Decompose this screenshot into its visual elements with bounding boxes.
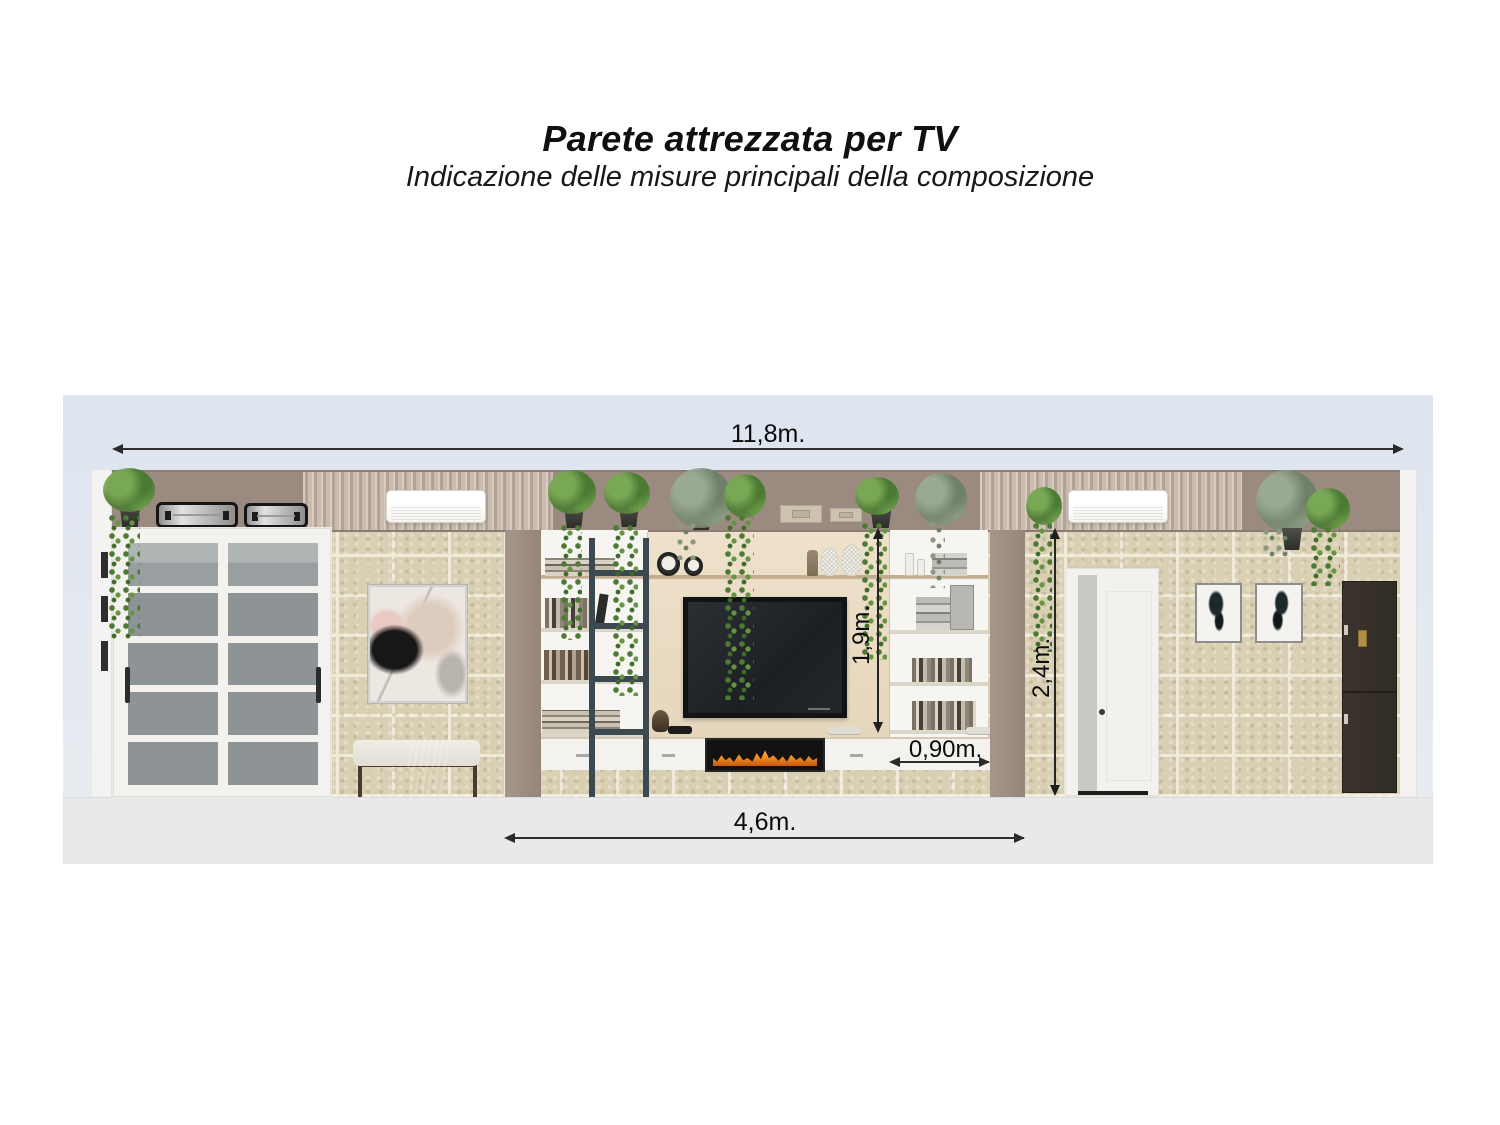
books — [544, 650, 590, 680]
door-track-mark — [101, 596, 108, 622]
bench-leg — [358, 764, 362, 797]
door-threshold — [1078, 791, 1148, 795]
storage-trunk — [156, 502, 238, 528]
door-knob — [1099, 709, 1105, 715]
ladder-rung — [589, 729, 649, 735]
storage-box — [950, 585, 974, 630]
throw-blanket — [406, 738, 450, 795]
bench-leg — [473, 764, 477, 797]
glass-pane — [128, 742, 218, 785]
cabinet-seam — [1343, 691, 1396, 693]
decor-dish — [828, 727, 861, 734]
decor-bottle — [917, 559, 925, 576]
books — [912, 658, 972, 682]
tall-dark-cabinet — [1342, 581, 1397, 793]
hanging-vine — [108, 514, 140, 640]
plant-foliage — [1026, 487, 1062, 525]
abstract-artwork — [368, 585, 467, 703]
framed-artwork — [1195, 583, 1242, 643]
dimension-line-total-width — [115, 448, 1402, 450]
glass-pane — [228, 593, 318, 636]
interior-door — [1065, 568, 1159, 796]
drawer-handle — [576, 754, 589, 757]
fireplace-flames — [713, 746, 817, 766]
artwork-figure — [1263, 590, 1295, 633]
glass-pane — [128, 692, 218, 735]
ladder-rail — [643, 538, 649, 797]
plant-foliage — [103, 468, 155, 512]
trunk-plate — [257, 515, 294, 517]
wall-vent-plate — [780, 505, 822, 523]
door-edge-panel — [1078, 575, 1097, 791]
plant-foliage — [724, 474, 766, 518]
plant-foliage — [1306, 488, 1350, 530]
dimension-label-niche-height: 1,9m. — [848, 600, 876, 670]
dimension-line-right-section — [891, 761, 989, 763]
hanging-vine — [1310, 526, 1340, 586]
plant-foliage — [548, 470, 596, 514]
storage-boxes — [916, 597, 952, 630]
tv-logo — [808, 708, 830, 710]
hanging-vine — [560, 524, 582, 640]
dimension-label-wall-height: 2,4m. — [1028, 633, 1056, 703]
silver-plant-foliage — [915, 473, 967, 525]
wall-right-return — [1400, 470, 1417, 797]
trunk-latch — [165, 511, 171, 520]
arrowhead-up — [873, 528, 883, 539]
arrowhead-left — [112, 444, 123, 454]
hanging-vine — [612, 524, 638, 696]
dimension-label-composition-width: 4,6m. — [665, 808, 865, 837]
arrowhead-right — [979, 757, 990, 767]
cabinet-handle — [1344, 625, 1348, 635]
books — [912, 701, 976, 730]
arrowhead-left — [504, 833, 515, 843]
page-subtitle: Indicazione delle misure principali dell… — [0, 161, 1500, 194]
tv-screen — [683, 597, 847, 718]
trunk-plate — [173, 514, 222, 516]
dimension-line-niche-height — [877, 531, 879, 731]
page-title: Parete attrezzata per TV — [0, 118, 1500, 160]
glass-pane — [228, 742, 318, 785]
glass-pane — [228, 543, 318, 586]
trunk-latch — [223, 511, 229, 520]
decor-vase — [841, 544, 862, 576]
decor-stack — [668, 726, 692, 734]
elevation-drawing-page: Parete attrezzata per TV Indicazione del… — [0, 0, 1500, 1125]
decor-bottle — [807, 550, 818, 576]
glass-pane — [128, 593, 218, 636]
unit-left-column — [505, 530, 541, 797]
silver-trailing-vine — [676, 522, 696, 560]
arrowhead-right — [1014, 833, 1025, 843]
glass-pane — [228, 643, 318, 686]
wall-vent-plate — [830, 508, 862, 522]
glass-pane — [128, 543, 218, 586]
hanging-vine — [724, 514, 754, 700]
cabinet-handle — [1344, 714, 1348, 724]
glass-pane — [228, 692, 318, 735]
door-handle — [125, 667, 130, 703]
silver-trailing-vine — [929, 520, 945, 588]
air-conditioner-left — [386, 490, 486, 523]
arrowhead-down — [1050, 785, 1060, 796]
door-handle — [316, 667, 321, 703]
trunk-latch — [294, 512, 300, 521]
artwork-figure — [1203, 590, 1234, 633]
cabinet-lock — [1358, 630, 1367, 647]
door-panel-line — [1106, 591, 1152, 781]
plant-foliage — [855, 477, 899, 515]
storage-trunk — [244, 503, 308, 528]
decor-bottle — [905, 553, 914, 576]
dimension-line-composition-width — [506, 837, 1024, 839]
air-conditioner-right — [1068, 490, 1168, 523]
decor-pot — [652, 710, 669, 732]
arrowhead-left — [889, 757, 900, 767]
decor-vase — [820, 548, 839, 576]
sliding-glass-door — [113, 528, 331, 797]
electric-fireplace — [705, 738, 825, 772]
ladder-rail — [589, 538, 595, 797]
arrowhead-up — [1050, 528, 1060, 539]
shelf — [890, 682, 988, 685]
silver-plant-foliage — [670, 468, 732, 528]
shelf — [890, 630, 988, 633]
drawer-handle — [662, 754, 675, 757]
glass-pane — [128, 643, 218, 686]
drawer-handle — [850, 754, 863, 757]
arrowhead-right — [1393, 444, 1404, 454]
framed-artwork — [1255, 583, 1303, 643]
dimension-label-total-width: 11,8m. — [663, 420, 873, 449]
door-glass-grid — [128, 543, 318, 785]
plant-foliage — [604, 472, 650, 514]
silver-trailing-vine — [1262, 528, 1288, 560]
door-track-mark — [101, 552, 108, 578]
door-track-mark — [101, 641, 108, 671]
arrowhead-down — [873, 722, 883, 733]
